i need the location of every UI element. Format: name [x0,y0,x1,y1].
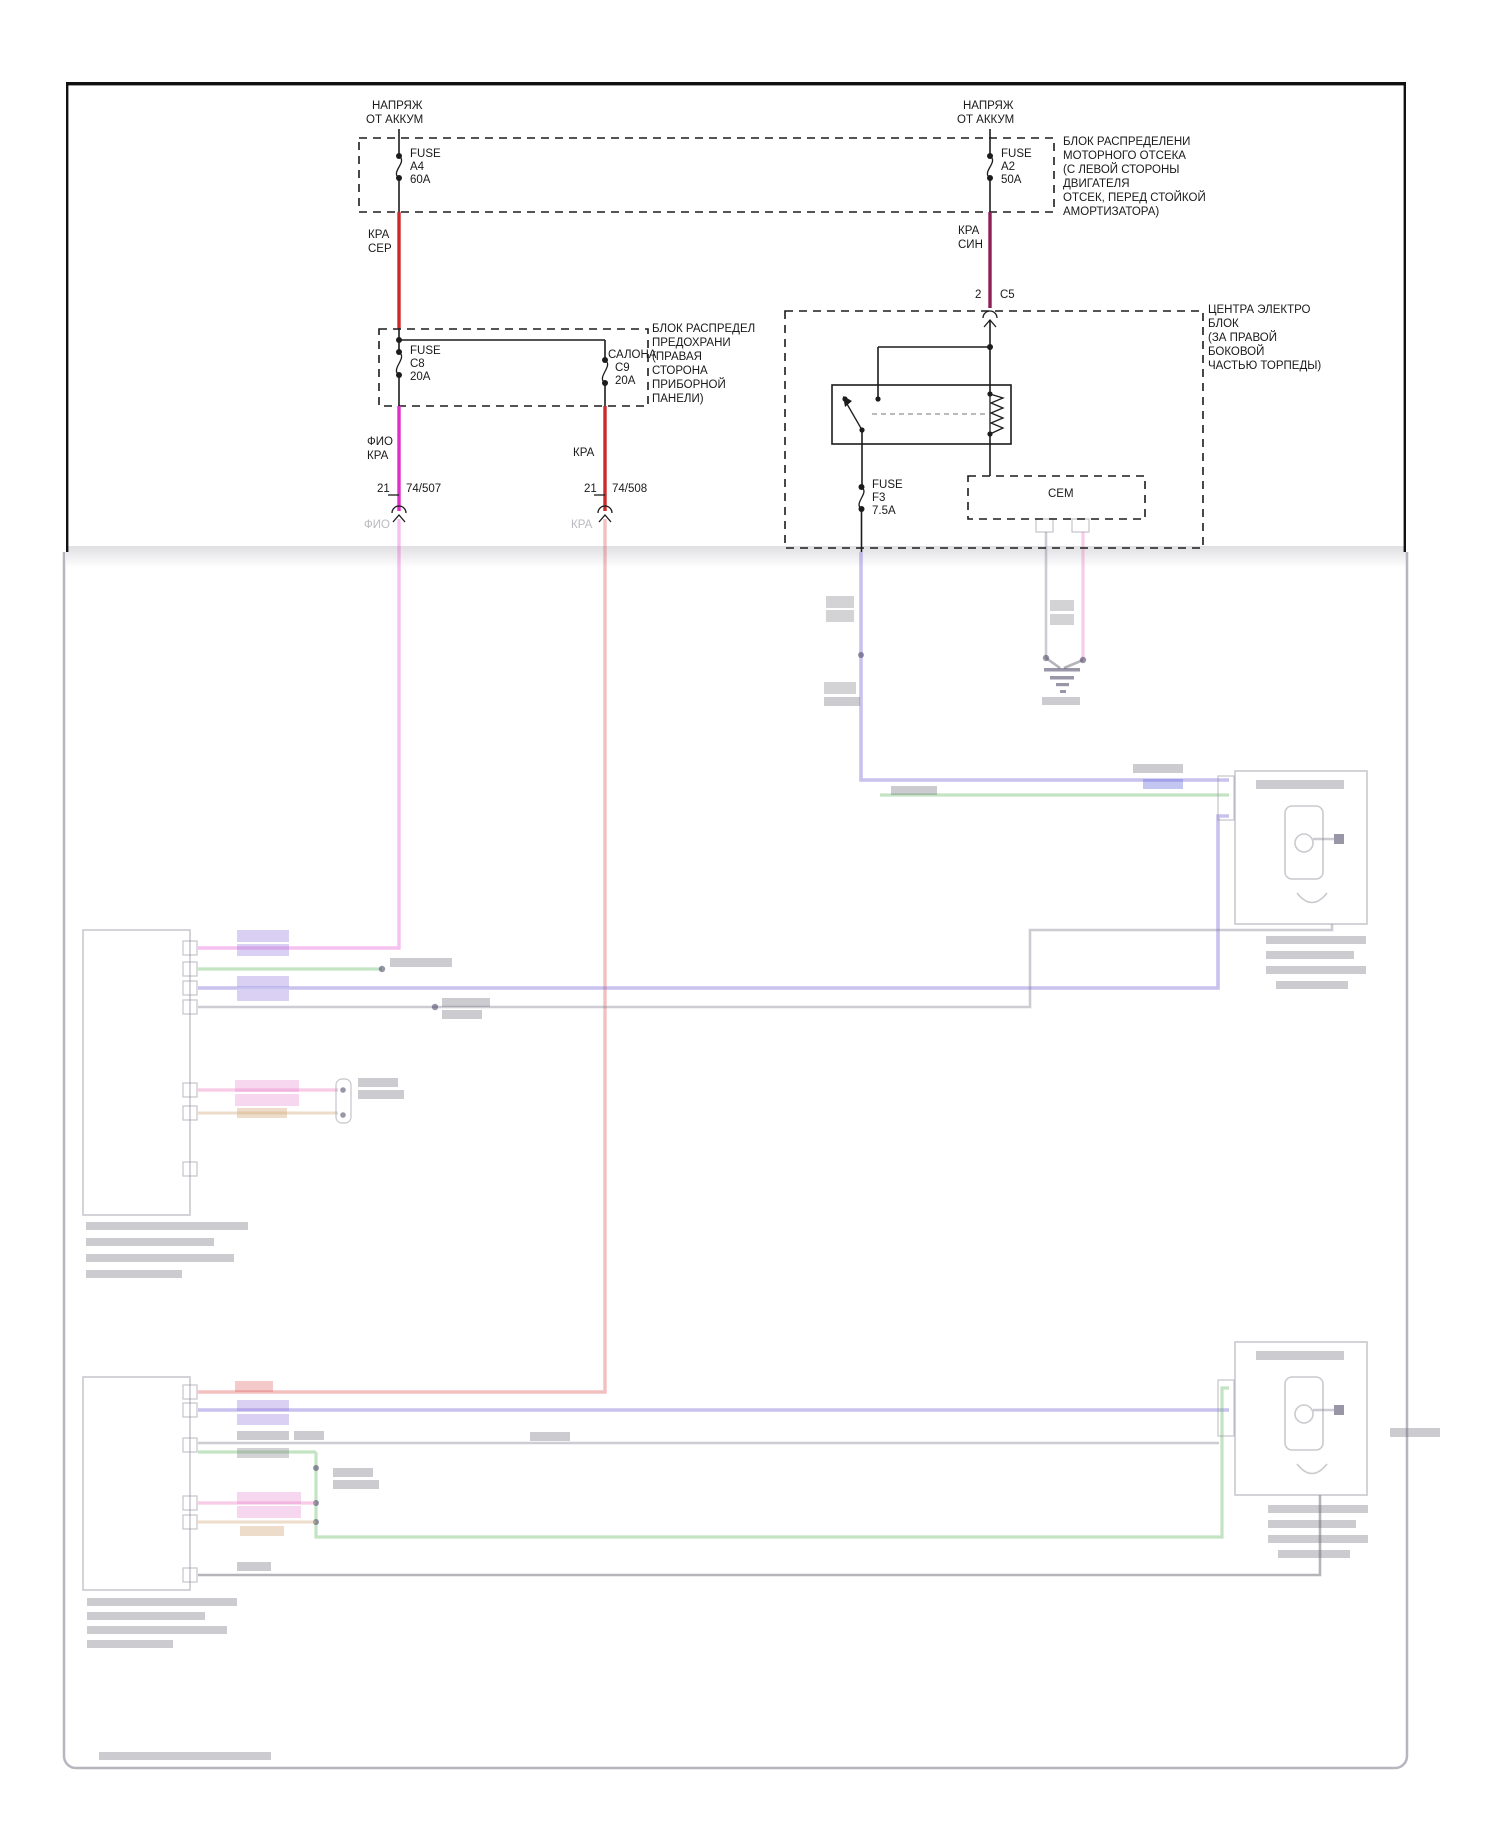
conn-right-id-label: 74/508 [612,483,647,496]
engine-box-note-6: АМОРТИЗАТОРА) [1063,206,1159,219]
interior-box-note-6: ПАНЕЛИ) [652,393,704,406]
kra-sin-label-1: КРА [958,225,979,238]
c5-name-label: C5 [1000,289,1015,302]
battery-feed-left-line2: ОТ АККУМ [366,114,423,127]
fuse-f3-label-3: 7.5A [872,505,896,518]
right-connector-box-upper [1218,771,1367,989]
wiring-diagram-canvas [0,0,1500,1828]
interior-box-note-5: ПРИБОРНОЙ [652,379,726,392]
conn-left-id-label: 74/507 [406,483,441,496]
fuse-a2-label-2: A2 [1001,161,1015,174]
fuse-a2-label-1: FUSE [1001,148,1032,161]
central-box-note-4: БОКОВОЙ [1208,346,1264,359]
central-box-note-3: (ЗА ПРАВОЙ [1208,332,1277,345]
faded-kra-label: КРА [571,519,592,532]
fuse-c8-label-3: 20A [410,371,430,384]
interior-box-note-1: БЛОК РАСПРЕДЕЛ [652,323,755,336]
engine-box-note-2: МОТОРНОГО ОТСЕКА [1063,150,1186,163]
wiring-diagram-page: НАПРЯЖ ОТ АККУМ FUSE A4 60A КРА СЕР НАПР… [0,0,1500,1828]
conn-right-pin-label: 21 [584,483,597,496]
fuse-f3-label-1: FUSE [872,479,903,492]
kra-label: КРА [573,447,594,460]
ground-icon [1044,668,1080,693]
fuse-c9-label-2: C9 [615,362,630,375]
kra-ser-label-1: КРА [368,229,389,242]
fuse-a4-label-3: 60A [410,174,430,187]
fio-kra-label-2: КРА [367,450,388,463]
inline-splice-upper [336,1079,351,1123]
kra-sin-label-2: СИН [958,239,983,252]
fio-kra-label-1: ФИО [367,436,393,449]
battery-feed-right-line2: ОТ АККУМ [957,114,1014,127]
central-box-note-1: ЦЕНТРА ЭЛЕКТРО [1208,304,1310,317]
conn-left-pin-label: 21 [377,483,390,496]
fuse-c8-label-1: FUSE [410,345,441,358]
faded-fio-label: ФИО [364,519,390,532]
central-box-note-5: ЧАСТЬЮ ТОРПЕДЫ) [1208,360,1321,373]
footer-text-bar [99,1752,271,1760]
fuse-a2-label-3: 50A [1001,174,1021,187]
fuse-a4-label-1: FUSE [410,148,441,161]
left-module-box-1 [83,930,248,1278]
fuse-a4-label-2: A4 [410,161,424,174]
central-box-note-2: БЛОК [1208,318,1239,331]
faded-diagram-layer [66,519,1440,1760]
right-connector-box-lower [1218,1342,1368,1558]
faded-fio-kra-wire [198,519,399,948]
kra-ser-label-2: СЕР [368,243,392,256]
battery-feed-left-line1: НАПРЯЖ [372,100,422,113]
battery-feed-right-line1: НАПРЯЖ [963,100,1013,113]
interior-box-note-2: ПРЕДОХРАНИ [652,337,731,350]
fuse-c9-label-1: САЛОНА [608,349,656,362]
fuse-c8-label-2: C8 [410,358,425,371]
engine-box-note-1: БЛОК РАСПРЕДЕЛЕНИ [1063,136,1190,149]
fuse-c9-label-3: 20A [615,375,635,388]
interior-box-note-4: СТОРОНА [652,365,708,378]
engine-box-note-4: ДВИГАТЕЛЯ [1063,178,1130,191]
cem-label: CEM [1048,488,1074,501]
engine-box-note-5: ОТСЕК, ПЕРЕД СТОЙКОЙ [1063,192,1206,205]
c5-pin-label: 2 [975,289,981,302]
engine-box-note-3: (С ЛЕВОЙ СТОРОНЫ [1063,164,1179,177]
interior-box-note-3: (ПРАВАЯ [652,351,702,364]
fuse-f3-label-2: F3 [872,492,885,505]
left-module-box-2 [83,1377,237,1648]
